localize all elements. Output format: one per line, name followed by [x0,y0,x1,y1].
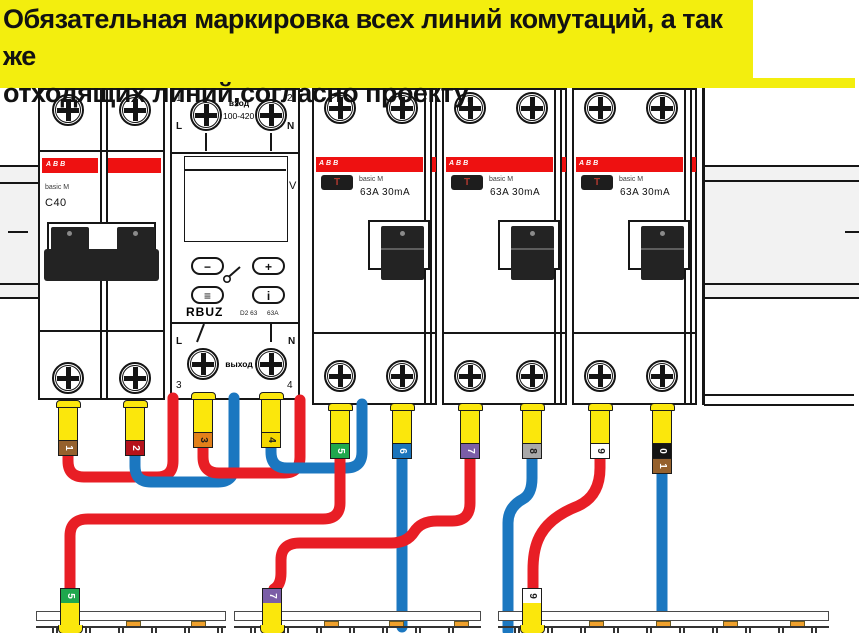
caption-text: Обязательная маркировка всех линий комут… [3,1,753,112]
terminal-comb-tooth [353,626,355,633]
terminal-comb-tooth [184,626,186,633]
terminal-comb-tooth [217,626,219,633]
terminal-comb-tooth [415,626,417,633]
terminal-comb-tooth [679,626,681,633]
terminal-comb-tooth [551,626,553,633]
terminal-comb-tooth [419,626,421,633]
terminal-comb-tooth [749,626,751,633]
terminal-comb-tooth [316,626,318,633]
wire-3-to-rcd1 [203,400,300,473]
terminal-comb-tooth [85,626,87,633]
terminal-comb-tooth [683,626,685,633]
cable-marker-1: 1 [56,400,81,456]
terminal-comb-tooth [712,626,714,633]
terminal-comb-tooth [320,626,322,633]
terminal-comb-tooth [287,626,289,633]
terminal-comb-tooth [782,626,784,633]
terminal-comb-tooth [448,626,450,633]
terminal-comb-tooth [646,626,648,633]
cable-marker-8: 8 [520,403,545,459]
terminal-comb-tooth [811,626,813,633]
terminal-comb-tooth [188,626,190,633]
cable-marker-9: 9 [588,403,613,459]
terminal-comb-tooth [580,626,582,633]
cable-marker-4: 4 [259,392,284,448]
terminal-comb-tooth [815,626,817,633]
terminal-stub-lines [197,133,271,342]
caption-line-1: Обязательная маркировка всех линий комут… [3,1,753,75]
terminal-comb-tooth [151,626,153,633]
terminal-comb-tooth [155,626,157,633]
terminal-comb-tooth [250,626,252,633]
cable-marker-7-busbar-end: 7 [260,588,285,633]
caption-line-2: отходящих линий,согласно проекту. [3,75,753,112]
terminal-comb-tooth [617,626,619,633]
cable-marker-3: 3 [191,392,216,448]
terminal-comb-tooth [584,626,586,633]
wire-1-to-rbuz-l [68,398,173,477]
cable-marker-9-busbar-end: 9 [520,588,545,633]
terminal-comb-tooth [514,626,516,633]
cable-marker-5: 5 [328,403,353,459]
terminal-comb-tooth [547,626,549,633]
terminal-comb-tooth [650,626,652,633]
terminal-comb-tooth [613,626,615,633]
terminal-comb-tooth [452,626,454,633]
cable-marker-2: 2 [123,400,148,456]
terminal-comb-tooth [221,626,223,633]
cable-marker-10: 01 [650,403,675,474]
terminal-comb-tooth [745,626,747,633]
terminal-comb-tooth [254,626,256,633]
terminal-comb-tooth [386,626,388,633]
terminal-comb-tooth [89,626,91,633]
cable-marker-6: 6 [390,403,415,459]
cable-marker-7: 7 [458,403,483,459]
busbar-3 [498,611,829,621]
terminal-comb-tooth [382,626,384,633]
terminal-comb-tooth [122,626,124,633]
terminal-comb-tooth [118,626,120,633]
terminal-comb-tooth [349,626,351,633]
wiring-diagram: Обязательная маркировка всех линий комут… [0,0,859,633]
terminal-comb-tooth [778,626,780,633]
terminal-comb-tooth [52,626,54,633]
relay-contact-icon [224,267,240,282]
terminal-comb-tooth [716,626,718,633]
cable-marker-5-busbar-end: 5 [58,588,83,633]
